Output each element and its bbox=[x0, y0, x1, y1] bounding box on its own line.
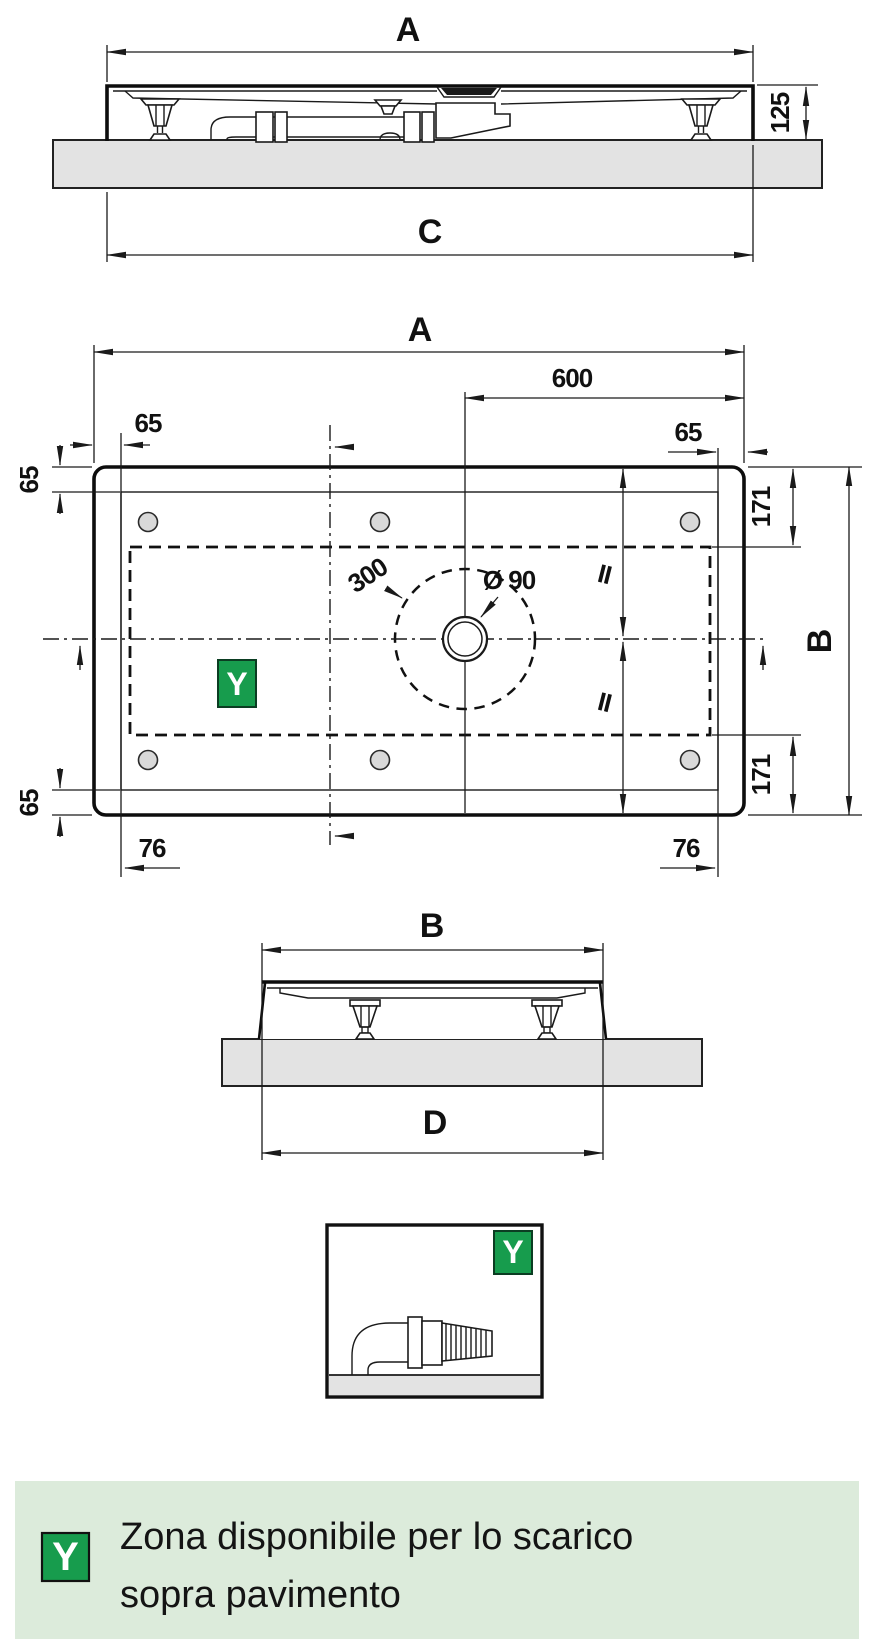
dim-a-extensions bbox=[107, 45, 753, 82]
side-elevation-view: B D bbox=[222, 907, 702, 1160]
dim-label-rim-top-left: 65 bbox=[135, 408, 162, 438]
dim-label-foot-left: 76 bbox=[139, 833, 166, 863]
floor-slab-side bbox=[222, 1039, 702, 1086]
plan-dim-a-extensions bbox=[94, 345, 744, 463]
dim-171-top-ticks bbox=[712, 467, 862, 547]
dim-label-drain-dia: Ø 90 bbox=[483, 565, 536, 595]
legend-text-line1: Zona disponibile per lo scarico bbox=[120, 1516, 633, 1558]
dim-label-plan-width: A bbox=[408, 311, 433, 349]
dim-label-side-base: D bbox=[423, 1104, 448, 1142]
legend: Y Zona disponibile per lo scarico sopra … bbox=[15, 1481, 859, 1639]
dim-label-front-height: 125 bbox=[765, 92, 795, 133]
dim-65-lu-ticks bbox=[52, 467, 120, 492]
dim-171-bottom-ticks bbox=[712, 735, 862, 815]
detail-floor-strip bbox=[329, 1375, 540, 1395]
floor-slab bbox=[53, 140, 822, 188]
legend-text-line2: sopra pavimento bbox=[120, 1574, 401, 1616]
drain-hole-outer bbox=[443, 617, 487, 661]
dim-label-corner-bottom-right: 171 bbox=[746, 754, 776, 795]
zone-badge-plan-label: Y bbox=[226, 666, 247, 702]
dim-65-ll-ticks bbox=[52, 790, 120, 815]
dim-label-rim-top-right: 65 bbox=[675, 417, 702, 447]
plan-view: Y A 600 65 65 65 65 171 171 bbox=[14, 311, 862, 877]
dim-label-corner-top-right: 171 bbox=[746, 486, 776, 527]
zone-badge-legend-label: Y bbox=[52, 1535, 79, 1579]
dim-label-front-width: A bbox=[396, 11, 421, 49]
front-elevation-view: A 125 C bbox=[53, 11, 822, 262]
dim-label-front-base: C bbox=[418, 213, 443, 251]
dim-label-rim-left-upper: 65 bbox=[14, 466, 44, 493]
zone-badge-plan: Y bbox=[218, 660, 256, 707]
drain-detail-box: Y bbox=[327, 1225, 542, 1397]
dim-label-rim-left-lower: 65 bbox=[14, 789, 44, 816]
leader-300 bbox=[387, 589, 402, 598]
technical-drawing: A 125 C bbox=[0, 0, 874, 1650]
zone-badge-detail: Y bbox=[494, 1231, 532, 1274]
dim-label-plan-depth: B bbox=[801, 629, 839, 654]
equal-mark-bottom: II bbox=[595, 686, 614, 718]
dim-label-clearance: 300 bbox=[342, 551, 393, 598]
shower-tray-installation-drawing: A 125 C bbox=[0, 0, 874, 1650]
equal-mark-top: II bbox=[595, 558, 614, 590]
zone-badge-detail-label: Y bbox=[502, 1234, 523, 1270]
waste-flange bbox=[441, 88, 497, 95]
dim-label-drain-offset: 600 bbox=[552, 363, 593, 393]
dim-label-foot-right: 76 bbox=[673, 833, 700, 863]
dim-label-side-width: B bbox=[420, 907, 445, 945]
zone-badge-legend: Y bbox=[42, 1533, 89, 1581]
